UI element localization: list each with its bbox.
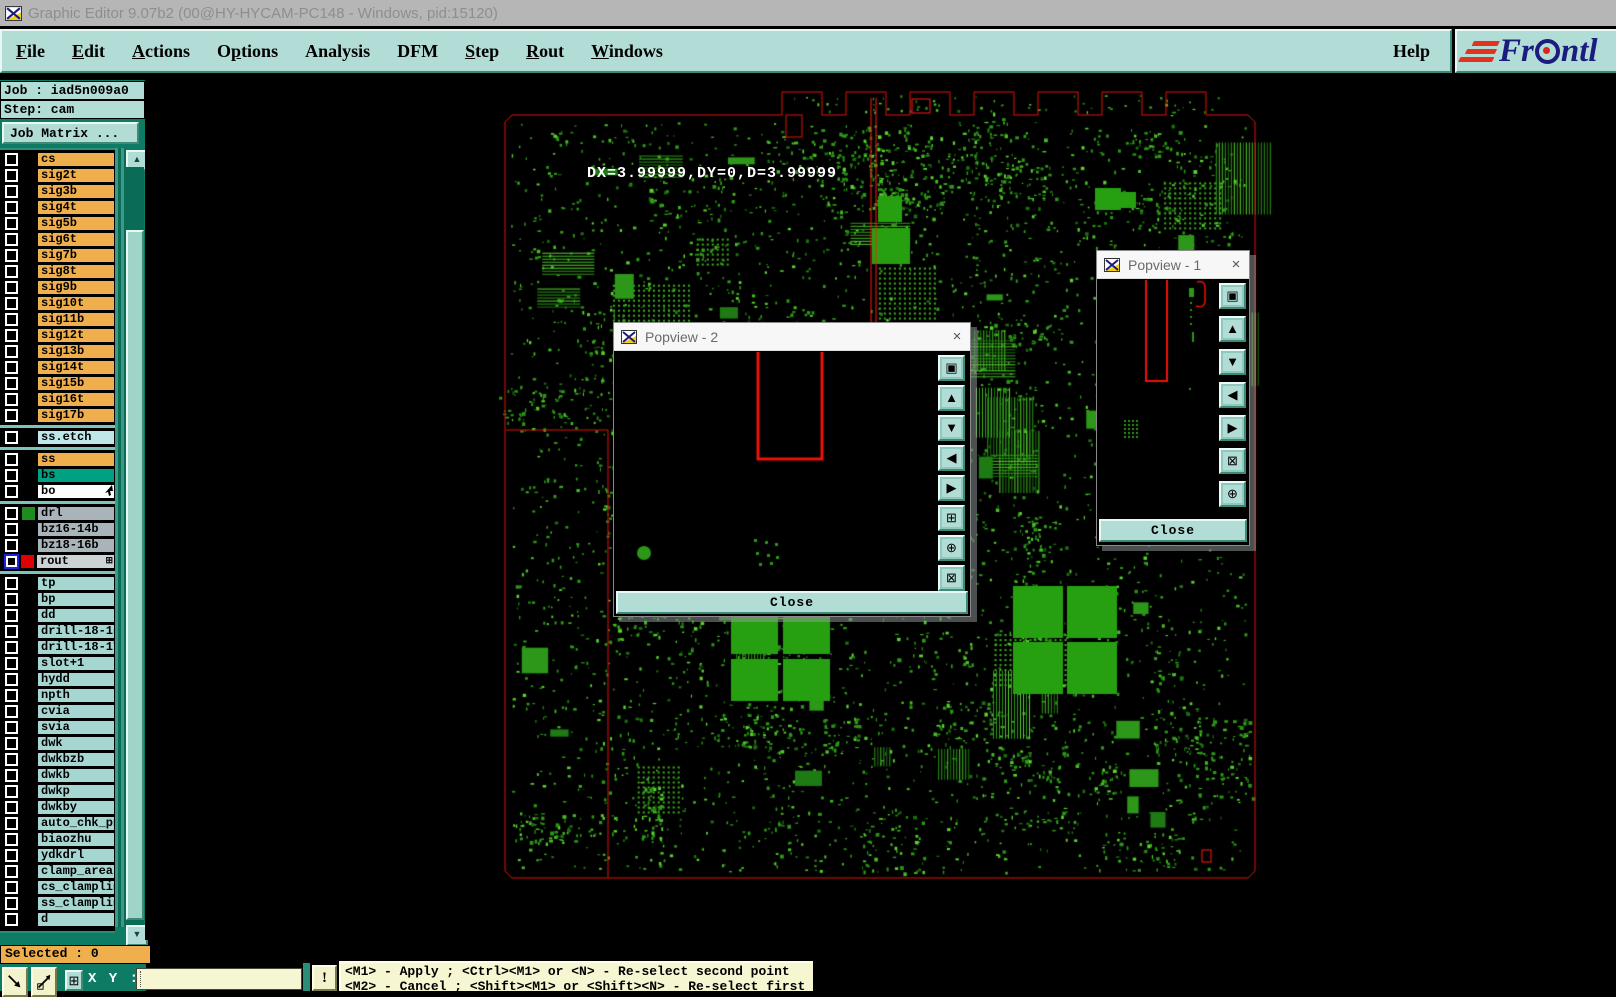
layer-color-swatch bbox=[22, 625, 35, 638]
logo-panel: Frntl bbox=[1455, 29, 1616, 73]
layer-name-label[interactable]: sig9b bbox=[37, 280, 115, 295]
layer-visibility-checkbox[interactable] bbox=[5, 249, 18, 262]
layer-group-separator bbox=[0, 501, 115, 504]
layer-color-swatch bbox=[22, 249, 35, 262]
text-caret bbox=[140, 971, 141, 987]
layer-row-sig11b[interactable]: sig11b bbox=[0, 312, 115, 327]
layer-visibility-checkbox[interactable] bbox=[5, 689, 18, 702]
layer-visibility-checkbox[interactable] bbox=[5, 507, 18, 520]
layer-visibility-checkbox[interactable] bbox=[5, 297, 18, 310]
layer-row-sig7b[interactable]: sig7b bbox=[0, 248, 115, 263]
layer-color-swatch bbox=[22, 817, 35, 830]
layer-name-label[interactable]: cs_clampline bbox=[37, 880, 115, 895]
layer-row-ss[interactable]: ss bbox=[0, 452, 115, 467]
window-title: Graphic Editor 9.07b2 (00@HY-HYCAM-PC148… bbox=[28, 5, 498, 22]
popview1-tool-copy-view-button[interactable]: ▣ bbox=[1219, 283, 1246, 309]
layer-visibility-checkbox[interactable] bbox=[5, 265, 18, 278]
layer-visibility-checkbox[interactable] bbox=[5, 897, 18, 910]
layer-visibility-checkbox[interactable] bbox=[5, 849, 18, 862]
popview1-tool-zoom-fit-button[interactable]: ⊠ bbox=[1219, 448, 1246, 474]
layer-name-label[interactable]: sig6t bbox=[37, 232, 115, 247]
cursor-icon bbox=[105, 485, 113, 499]
layer-color-swatch bbox=[22, 705, 35, 718]
layer-row-rout[interactable]: rout⊞ bbox=[0, 554, 115, 569]
layer-name-label[interactable]: biaozhu bbox=[37, 832, 115, 847]
layer-list: cssig2tsig3bsig4tsig5bsig6tsig7bsig8tsig… bbox=[0, 148, 115, 933]
popview-1-close-button[interactable]: Close bbox=[1099, 519, 1247, 542]
layer-color-swatch bbox=[22, 849, 35, 862]
layer-color-swatch bbox=[22, 485, 35, 498]
menu-rout[interactable]: Rout bbox=[526, 41, 564, 62]
layer-color-swatch bbox=[22, 469, 35, 482]
layer-visibility-checkbox[interactable] bbox=[5, 913, 18, 926]
layer-name-label[interactable]: sig12t bbox=[37, 328, 115, 343]
layer-color-swatch bbox=[22, 453, 35, 466]
xy-input[interactable] bbox=[136, 968, 302, 990]
popview1-tool-pan-left-button[interactable]: ◀ bbox=[1219, 382, 1246, 408]
menu-options[interactable]: Options bbox=[217, 41, 278, 62]
layer-name-label[interactable]: bp bbox=[37, 592, 115, 607]
popview1-tool-pan-up-button[interactable]: ▲ bbox=[1219, 316, 1246, 342]
grid-icon: ⊞ bbox=[69, 973, 80, 989]
layer-name-label[interactable]: svia bbox=[37, 720, 115, 735]
layer-row-sig8t[interactable]: sig8t bbox=[0, 264, 115, 279]
layer-row-npth[interactable]: npth bbox=[0, 688, 115, 703]
layer-row-sig2t[interactable]: sig2t bbox=[0, 168, 115, 183]
layer-group-separator bbox=[0, 425, 115, 428]
layer-name-label[interactable]: sig15b bbox=[37, 376, 115, 391]
layer-color-swatch bbox=[22, 769, 35, 782]
layer-name-label[interactable]: sig13b bbox=[37, 344, 115, 359]
layer-visibility-checkbox[interactable] bbox=[5, 185, 18, 198]
popview-1-close-icon[interactable]: × bbox=[1223, 256, 1249, 273]
layer-color-swatch bbox=[22, 153, 35, 166]
layer-name-label[interactable]: bo bbox=[37, 484, 115, 499]
layer-list-gutter bbox=[115, 148, 126, 927]
layer-name-label[interactable]: clamp_area bbox=[37, 864, 115, 879]
scroll-thumb[interactable] bbox=[126, 230, 144, 920]
layer-row-bo[interactable]: bo bbox=[0, 484, 115, 499]
layer-color-swatch bbox=[22, 833, 35, 846]
layer-visibility-checkbox[interactable] bbox=[5, 769, 18, 782]
layer-visibility-checkbox[interactable] bbox=[5, 453, 18, 466]
layer-visibility-checkbox[interactable] bbox=[5, 753, 18, 766]
layer-visibility-checkbox[interactable] bbox=[5, 625, 18, 638]
layer-color-swatch bbox=[22, 609, 35, 622]
popview2-tool-pan-down-button[interactable]: ▼ bbox=[938, 415, 965, 441]
job-matrix-button[interactable]: Job Matrix ... bbox=[2, 122, 139, 144]
layer-visibility-checkbox[interactable] bbox=[5, 361, 18, 374]
measure-mode-button[interactable] bbox=[31, 967, 57, 997]
layer-row-sig17b[interactable]: sig17b bbox=[0, 408, 115, 423]
layer-row-bz16-14b[interactable]: bz16-14b bbox=[0, 522, 115, 537]
layer-name-label[interactable]: sig7b bbox=[37, 248, 115, 263]
alert-button[interactable]: ! bbox=[312, 965, 337, 991]
layer-name-label[interactable]: d bbox=[37, 912, 115, 927]
layer-color-swatch bbox=[22, 785, 35, 798]
layer-color-swatch bbox=[22, 721, 35, 734]
layer-row-dwkb[interactable]: dwkb bbox=[0, 768, 115, 783]
layer-name-label[interactable]: dwkb bbox=[37, 768, 115, 783]
layer-group-separator bbox=[0, 571, 115, 574]
layer-name-label[interactable]: tp bbox=[37, 576, 115, 591]
menu-dfm[interactable]: DFM bbox=[397, 41, 438, 62]
layer-color-swatch bbox=[22, 753, 35, 766]
layer-color-swatch bbox=[22, 539, 35, 552]
layer-group-separator bbox=[0, 447, 115, 450]
layer-color-swatch bbox=[22, 737, 35, 750]
app-icon bbox=[5, 6, 22, 21]
layer-row-auto_chk_pnl[interactable]: auto_chk_pnl bbox=[0, 816, 115, 831]
layer-visibility-checkbox[interactable] bbox=[5, 641, 18, 654]
popview-2-window: Popview - 2 × ▣▲▼◀▶⊞⊕⊠ Close bbox=[613, 322, 971, 617]
layer-name-label[interactable]: ydkdrl bbox=[37, 848, 115, 863]
layer-visibility-checkbox[interactable] bbox=[5, 657, 18, 670]
layer-row-ydkdrl[interactable]: ydkdrl bbox=[0, 848, 115, 863]
popview2-tool-zoom-in-button[interactable]: ⊕ bbox=[938, 535, 965, 561]
layer-row-dd[interactable]: dd bbox=[0, 608, 115, 623]
layer-visibility-checkbox[interactable] bbox=[5, 817, 18, 830]
layer-color-swatch bbox=[22, 641, 35, 654]
popview-1-canvas[interactable] bbox=[1100, 280, 1216, 512]
popview-2-close-icon[interactable]: × bbox=[944, 328, 970, 345]
status-message-line1: <M1> - Apply ; <Ctrl><M1> or <N> - Re-se… bbox=[345, 965, 813, 978]
layer-visibility-checkbox[interactable] bbox=[5, 329, 18, 342]
layer-visibility-checkbox[interactable] bbox=[5, 523, 18, 536]
layer-name-label[interactable]: hydd bbox=[37, 672, 115, 687]
layer-visibility-checkbox[interactable] bbox=[5, 431, 18, 444]
layer-color-swatch bbox=[22, 377, 35, 390]
layer-color-swatch bbox=[22, 431, 35, 444]
layer-name-label[interactable]: npth bbox=[37, 688, 115, 703]
layer-row-biaozhu[interactable]: biaozhu bbox=[0, 832, 115, 847]
layer-row-drill-18-17[interactable]: drill-18-17 bbox=[0, 640, 115, 655]
layer-row-slot+1[interactable]: slot+1 bbox=[0, 656, 115, 671]
layer-name-label[interactable]: auto_chk_pnl bbox=[37, 816, 115, 831]
layer-name-label[interactable]: dwkp bbox=[37, 784, 115, 799]
layer-row-sig6t[interactable]: sig6t bbox=[0, 232, 115, 247]
layer-row-ss_clampline[interactable]: ss_clampline bbox=[0, 896, 115, 911]
popview-1-titlebar[interactable]: Popview - 1 × bbox=[1097, 251, 1249, 279]
layer-name-label[interactable]: sig2t bbox=[37, 168, 115, 183]
layer-color-swatch bbox=[22, 577, 35, 590]
menu-actions[interactable]: Actions bbox=[132, 41, 190, 62]
layer-color-swatch bbox=[22, 329, 35, 342]
popview2-tool-pan-up-button[interactable]: ▲ bbox=[938, 385, 965, 411]
menu-bar: FileEditActionsOptionsAnalysisDFMStepRou… bbox=[0, 29, 1452, 73]
layer-name-label[interactable]: bz16-14b bbox=[37, 522, 115, 537]
layer-color-swatch bbox=[22, 169, 35, 182]
layer-row-bs[interactable]: bs bbox=[0, 468, 115, 483]
layer-color-swatch bbox=[22, 201, 35, 214]
layer-color-swatch bbox=[22, 881, 35, 894]
selected-count: Selected : 0 bbox=[0, 945, 151, 964]
popview-1-toolbar: ▣▲▼◀▶⊠⊕ bbox=[1219, 283, 1246, 507]
layer-color-swatch bbox=[22, 409, 35, 422]
layer-name-label[interactable]: cvia bbox=[37, 704, 115, 719]
layer-visibility-checkbox[interactable] bbox=[5, 865, 18, 878]
popview-1-icon bbox=[1104, 258, 1120, 272]
layer-name-label[interactable]: rout⊞ bbox=[36, 554, 115, 569]
logo-text-post: ntl bbox=[1561, 33, 1598, 70]
layer-visibility-checkbox[interactable] bbox=[5, 593, 18, 606]
layer-color-swatch bbox=[22, 217, 35, 230]
layer-color-swatch bbox=[22, 265, 35, 278]
logo-text: Frntl bbox=[1499, 33, 1598, 70]
layer-color-swatch bbox=[22, 593, 35, 606]
popview2-tool-pan-left-button[interactable]: ◀ bbox=[938, 445, 965, 471]
layer-color-swatch bbox=[22, 657, 35, 670]
layer-visibility-checkbox[interactable] bbox=[5, 785, 18, 798]
layer-name-label[interactable]: sig11b bbox=[37, 312, 115, 327]
layer-name-label[interactable]: bs bbox=[37, 468, 115, 483]
layer-name-label[interactable]: sig8t bbox=[37, 264, 115, 279]
status-message-line2: <M2> - Cancel ; <Shift><M1> or <Shift><N… bbox=[345, 980, 813, 991]
layer-color-swatch bbox=[22, 801, 35, 814]
layer-color-swatch bbox=[22, 233, 35, 246]
layer-visibility-checkbox[interactable] bbox=[5, 539, 18, 552]
layer-visibility-checkbox[interactable] bbox=[5, 485, 18, 498]
popview1-tool-pan-right-button[interactable]: ▶ bbox=[1219, 415, 1246, 441]
layer-color-swatch bbox=[22, 185, 35, 198]
layer-name-label[interactable]: drill-18-15 bbox=[37, 624, 115, 639]
layer-row-dwkp[interactable]: dwkp bbox=[0, 784, 115, 799]
layer-name-label[interactable]: sig3b bbox=[37, 184, 115, 199]
layer-color-swatch bbox=[22, 313, 35, 326]
layer-color-swatch bbox=[22, 361, 35, 374]
layer-name-label[interactable]: ss.etch bbox=[37, 430, 115, 445]
menu-help[interactable]: Help bbox=[1393, 41, 1430, 62]
layer-visibility-checkbox[interactable] bbox=[5, 409, 18, 422]
layer-visibility-checkbox[interactable] bbox=[5, 833, 18, 846]
toolbar-divider bbox=[303, 963, 310, 991]
grid-toggle-button[interactable]: ⊞ bbox=[65, 970, 83, 991]
layer-name-label[interactable]: sig17b bbox=[37, 408, 115, 423]
layer-name-label[interactable]: cs bbox=[37, 152, 115, 167]
layer-visibility-checkbox[interactable] bbox=[5, 233, 18, 246]
layer-color-swatch bbox=[22, 865, 35, 878]
scrollbar-trough[interactable] bbox=[126, 167, 144, 925]
layer-visibility-checkbox[interactable] bbox=[5, 705, 18, 718]
layer-row-drl[interactable]: drl bbox=[0, 506, 115, 521]
measurement-readout: DX=3.99999,DY=0,D=3.99999 bbox=[587, 165, 837, 182]
menu-edit[interactable]: Edit bbox=[72, 41, 105, 62]
layer-row-bp[interactable]: bp bbox=[0, 592, 115, 607]
layer-row-cvia[interactable]: cvia bbox=[0, 704, 115, 719]
xy-coordinates-label: X Y : bbox=[88, 971, 140, 987]
layer-color-swatch bbox=[22, 897, 35, 910]
layer-name-label[interactable]: drl bbox=[37, 506, 115, 521]
layer-name-label[interactable]: dwk bbox=[37, 736, 115, 751]
layer-visibility-checkbox[interactable] bbox=[5, 721, 18, 734]
layer-visibility-checkbox[interactable] bbox=[5, 609, 18, 622]
layer-visibility-checkbox[interactable] bbox=[5, 393, 18, 406]
popview1-tool-pan-down-button[interactable]: ▼ bbox=[1219, 349, 1246, 375]
menu-analysis[interactable]: Analysis bbox=[305, 41, 370, 62]
menu-file[interactable]: File bbox=[16, 41, 45, 62]
layer-name-label[interactable]: dd bbox=[37, 608, 115, 623]
popview1-tool-zoom-in-button[interactable]: ⊕ bbox=[1219, 481, 1246, 507]
layer-visibility-checkbox[interactable] bbox=[5, 153, 18, 166]
popview-2-close-button[interactable]: Close bbox=[616, 591, 968, 614]
popview-1-window: Popview - 1 × ▣▲▼◀▶⊠⊕ Close bbox=[1096, 250, 1250, 546]
layer-visibility-checkbox[interactable] bbox=[5, 577, 18, 590]
layer-visibility-checkbox[interactable] bbox=[5, 881, 18, 894]
logo-text-pre: Fr bbox=[1499, 33, 1534, 70]
layer-row-sig10t[interactable]: sig10t bbox=[0, 296, 115, 311]
diagonal-arrow-icon bbox=[6, 973, 24, 991]
logo-speed-lines-icon bbox=[1458, 41, 1502, 62]
layer-row-cs[interactable]: cs bbox=[0, 152, 115, 167]
layer-row-hydd[interactable]: hydd bbox=[0, 672, 115, 687]
popview2-tool-zoom-fit-button[interactable]: ⊞ bbox=[938, 505, 965, 531]
layer-row-cs_clampline[interactable]: cs_clampline bbox=[0, 880, 115, 895]
layer-visibility-checkbox[interactable] bbox=[5, 673, 18, 686]
logo-o-icon bbox=[1535, 39, 1560, 64]
layer-name-label[interactable]: ss bbox=[37, 452, 115, 467]
layer-color-swatch bbox=[22, 913, 35, 926]
layer-color-swatch bbox=[22, 689, 35, 702]
layer-visibility-checkbox[interactable] bbox=[5, 313, 18, 326]
layer-color-swatch bbox=[21, 555, 34, 568]
popview-2-toolbar: ▣▲▼◀▶⊞⊕⊠ bbox=[938, 355, 965, 591]
layer-visibility-checkbox[interactable] bbox=[5, 217, 18, 230]
layer-row-svia[interactable]: svia bbox=[0, 720, 115, 735]
layer-visibility-checkbox[interactable] bbox=[5, 801, 18, 814]
menu-windows[interactable]: Windows bbox=[591, 41, 663, 62]
layer-row-dwk[interactable]: dwk bbox=[0, 736, 115, 751]
step-label: Step: cam bbox=[0, 100, 145, 119]
layer-color-swatch bbox=[22, 523, 35, 536]
layer-visibility-checkbox[interactable] bbox=[5, 737, 18, 750]
layer-name-label[interactable]: dwkby bbox=[37, 800, 115, 815]
job-label: Job : iad5n009a0 bbox=[0, 81, 145, 100]
layer-visibility-checkbox[interactable] bbox=[5, 169, 18, 182]
layer-row-drill-18-15[interactable]: drill-18-15 bbox=[0, 624, 115, 639]
popview2-tool-pan-right-button[interactable]: ▶ bbox=[938, 475, 965, 501]
layer-name-label[interactable]: ss_clampline bbox=[37, 896, 115, 911]
layer-row-sig16t[interactable]: sig16t bbox=[0, 392, 115, 407]
status-message-panel: <M1> - Apply ; <Ctrl><M1> or <N> - Re-se… bbox=[339, 961, 813, 991]
layer-name-label[interactable]: slot+1 bbox=[37, 656, 115, 671]
layer-name-label[interactable]: sig14t bbox=[37, 360, 115, 375]
layer-visibility-checkbox[interactable] bbox=[6, 556, 17, 567]
layer-row-tp[interactable]: tp bbox=[0, 576, 115, 591]
layer-color-swatch bbox=[22, 507, 35, 520]
layer-name-label[interactable]: sig4t bbox=[37, 200, 115, 215]
layer-name-label[interactable]: sig16t bbox=[37, 392, 115, 407]
layer-row-dwkby[interactable]: dwkby bbox=[0, 800, 115, 815]
layer-visibility-checkbox[interactable] bbox=[5, 469, 18, 482]
layer-visibility-checkbox[interactable] bbox=[5, 377, 18, 390]
layer-name-label[interactable]: drill-18-17 bbox=[37, 640, 115, 655]
layer-color-swatch bbox=[22, 281, 35, 294]
layer-color-swatch bbox=[22, 345, 35, 358]
popview-2-title: Popview - 2 bbox=[645, 329, 944, 345]
select-mode-button[interactable] bbox=[2, 967, 28, 997]
layer-visibility-checkbox[interactable] bbox=[5, 345, 18, 358]
popview-2-titlebar[interactable]: Popview - 2 × bbox=[614, 323, 970, 351]
window-titlebar: Graphic Editor 9.07b2 (00@HY-HYCAM-PC148… bbox=[0, 0, 1616, 26]
layer-row-sig13b[interactable]: sig13b bbox=[0, 344, 115, 359]
layer-row-sig14t[interactable]: sig14t bbox=[0, 360, 115, 375]
popview-2-canvas[interactable] bbox=[616, 352, 934, 588]
layer-row-sig4t[interactable]: sig4t bbox=[0, 200, 115, 215]
layer-visibility-checkbox[interactable] bbox=[5, 281, 18, 294]
layer-row-sig9b[interactable]: sig9b bbox=[0, 280, 115, 295]
sidebar: Job : iad5n009a0 Step: cam Job Matrix ..… bbox=[0, 80, 146, 991]
measure-icon bbox=[35, 973, 53, 991]
layer-name-label[interactable]: sig10t bbox=[37, 296, 115, 311]
popview-2-icon bbox=[621, 330, 637, 344]
popview2-tool-zoom-home-button[interactable]: ⊠ bbox=[938, 565, 965, 591]
rout-badge-icon: ⊞ bbox=[105, 555, 113, 568]
layer-visibility-checkbox[interactable] bbox=[5, 201, 18, 214]
layer-row-ss.etch[interactable]: ss.etch bbox=[0, 430, 115, 445]
layer-row-d[interactable]: d bbox=[0, 912, 115, 927]
layer-row-bz18-16b[interactable]: bz18-16b bbox=[0, 538, 115, 553]
layer-row-sig15b[interactable]: sig15b bbox=[0, 376, 115, 391]
popview-1-title: Popview - 1 bbox=[1128, 257, 1223, 273]
layer-name-label[interactable]: dwkbzb bbox=[37, 752, 115, 767]
layer-name-label[interactable]: bz18-16b bbox=[37, 538, 115, 553]
menu-step[interactable]: Step bbox=[465, 41, 499, 62]
popview2-tool-copy-view-button[interactable]: ▣ bbox=[938, 355, 965, 381]
layer-color-swatch bbox=[22, 297, 35, 310]
layer-row-sig5b[interactable]: sig5b bbox=[0, 216, 115, 231]
menu-items: FileEditActionsOptionsAnalysisDFMStepRou… bbox=[16, 41, 1393, 62]
layer-name-label[interactable]: sig5b bbox=[37, 216, 115, 231]
layer-color-swatch bbox=[22, 673, 35, 686]
layer-row-dwkbzb[interactable]: dwkbzb bbox=[0, 752, 115, 767]
layer-row-sig12t[interactable]: sig12t bbox=[0, 328, 115, 343]
layer-color-swatch bbox=[22, 393, 35, 406]
layer-row-clamp_area[interactable]: clamp_area bbox=[0, 864, 115, 879]
layer-row-sig3b[interactable]: sig3b bbox=[0, 184, 115, 199]
